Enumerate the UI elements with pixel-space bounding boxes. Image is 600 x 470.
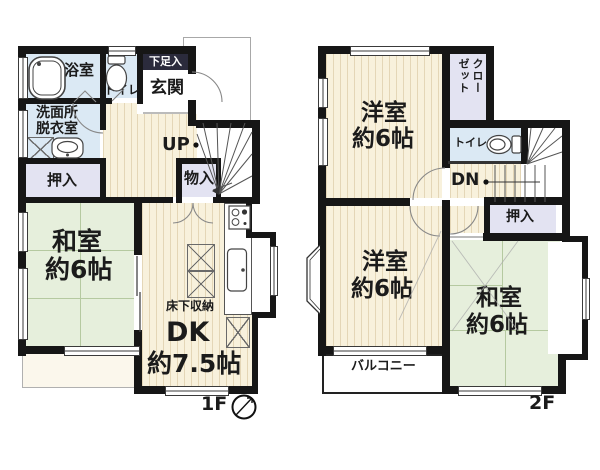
wall-segment — [18, 158, 106, 164]
room-size-washitsu-1f: 約6帖 — [45, 256, 112, 284]
sliding-door-marks — [137, 256, 140, 332]
room-label-yoshitsu-lower: 洋室 — [362, 250, 408, 276]
storage-xbox — [187, 244, 215, 272]
window-marker — [350, 46, 430, 56]
window-marker — [582, 278, 590, 320]
wall-segment — [448, 161, 523, 164]
room-size-dk: 約7.5帖 — [147, 350, 241, 378]
floor-label-2f: 2F — [529, 393, 555, 414]
room-label-dk: DK — [166, 318, 209, 348]
window-marker — [18, 212, 28, 252]
window-marker — [18, 268, 28, 340]
wall-segment — [562, 122, 570, 242]
floor-label-1f: 1F — [201, 394, 227, 415]
room-label-washitsu-1f: 和室 — [52, 228, 102, 256]
window-marker — [270, 246, 278, 296]
wall-segment — [18, 46, 196, 54]
room-size-yoshitsu-upper: 約6帖 — [352, 127, 414, 153]
window-marker — [64, 346, 140, 356]
storage-xbox — [187, 270, 215, 298]
room-size-yoshitsu-lower: 約6帖 — [351, 277, 413, 303]
stairs-dn-label: DN — [451, 171, 479, 190]
room-label-genkan: 玄関 — [150, 79, 184, 98]
underfloor-storage-xbox — [226, 317, 250, 348]
room-label-bath: 浴室 — [64, 62, 94, 79]
stairs-up-label: UP — [162, 135, 190, 155]
wall-segment — [134, 197, 142, 255]
wall-segment — [442, 46, 450, 168]
wall-segment — [484, 197, 568, 205]
room-label-balcony: バルコニー — [351, 360, 416, 375]
window-marker — [18, 110, 28, 158]
wall-segment — [486, 120, 570, 128]
room-label-oshiire-1f: 押入 — [47, 172, 77, 189]
room-label-yoshitsu-upper: 洋室 — [361, 101, 407, 127]
compass-icon — [233, 396, 256, 419]
wall-segment — [483, 233, 568, 241]
room-label-monoire: 物入 — [184, 170, 214, 187]
room-label-washroom-1: 洗面所 — [36, 106, 78, 122]
room-label-closet-2f: クローゼット — [452, 58, 484, 104]
underfloor-storage-label: 床下収納 — [166, 300, 214, 313]
wall-segment — [176, 158, 182, 203]
window-marker — [318, 118, 328, 166]
room-size-washitsu-2f: 約6帖 — [466, 313, 528, 339]
window-marker — [108, 46, 136, 56]
wall-segment — [196, 120, 260, 128]
wall-segment — [318, 198, 410, 206]
room-label-toilet-2f: トイレ — [454, 137, 487, 149]
room-label-shoe-storage: 下足入 — [143, 56, 188, 68]
wall-segment — [134, 197, 173, 203]
wall-segment — [18, 197, 142, 203]
wall-segment — [521, 124, 528, 164]
wall-segment — [442, 200, 450, 394]
wall-segment — [252, 312, 258, 394]
wall-segment — [188, 100, 196, 126]
tatami-line — [26, 298, 134, 299]
washitsu-2f-board-strip — [548, 242, 582, 354]
wall-segment — [176, 158, 220, 164]
wall-segment — [134, 330, 142, 394]
wall-segment — [484, 197, 490, 237]
wall-segment — [18, 346, 66, 354]
hallway-2f-vestibule — [450, 206, 484, 233]
wall-segment — [188, 46, 196, 74]
wall-segment — [213, 197, 260, 203]
wall-segment — [100, 98, 106, 130]
wall-segment — [18, 98, 112, 104]
wall-segment — [252, 120, 260, 204]
wall-segment — [486, 46, 494, 128]
room-label-washitsu-2f: 和室 — [476, 286, 522, 312]
window-marker — [333, 346, 427, 356]
window-marker — [18, 57, 28, 99]
hallway-1f — [103, 103, 137, 197]
floor-plan: 浴室 トイレ 下足入 玄関 洗面所 脱衣室 押入 UP 物入 和室 約6帖 床下… — [0, 0, 600, 470]
veranda-porch-1f — [22, 352, 140, 388]
room-label-oshiire-2f: 押入 — [506, 210, 534, 226]
threshold-line — [446, 236, 483, 238]
genkan-step-line — [143, 112, 188, 114]
room-label-washroom-2: 脱衣室 — [36, 122, 78, 138]
window-marker — [318, 78, 328, 108]
room-label-toilet-1f: トイレ — [104, 84, 140, 97]
